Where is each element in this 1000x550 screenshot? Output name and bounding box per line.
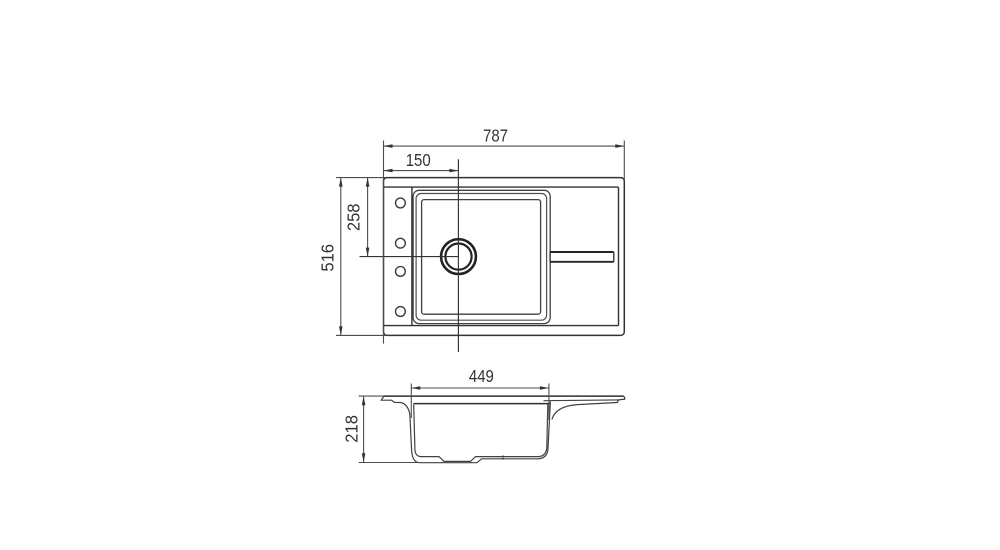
svg-text:787: 787 [483,127,508,146]
svg-text:258: 258 [344,203,363,231]
svg-text:516: 516 [318,244,337,272]
svg-text:449: 449 [469,367,494,386]
svg-text:150: 150 [406,151,431,170]
svg-text:218: 218 [342,415,361,443]
